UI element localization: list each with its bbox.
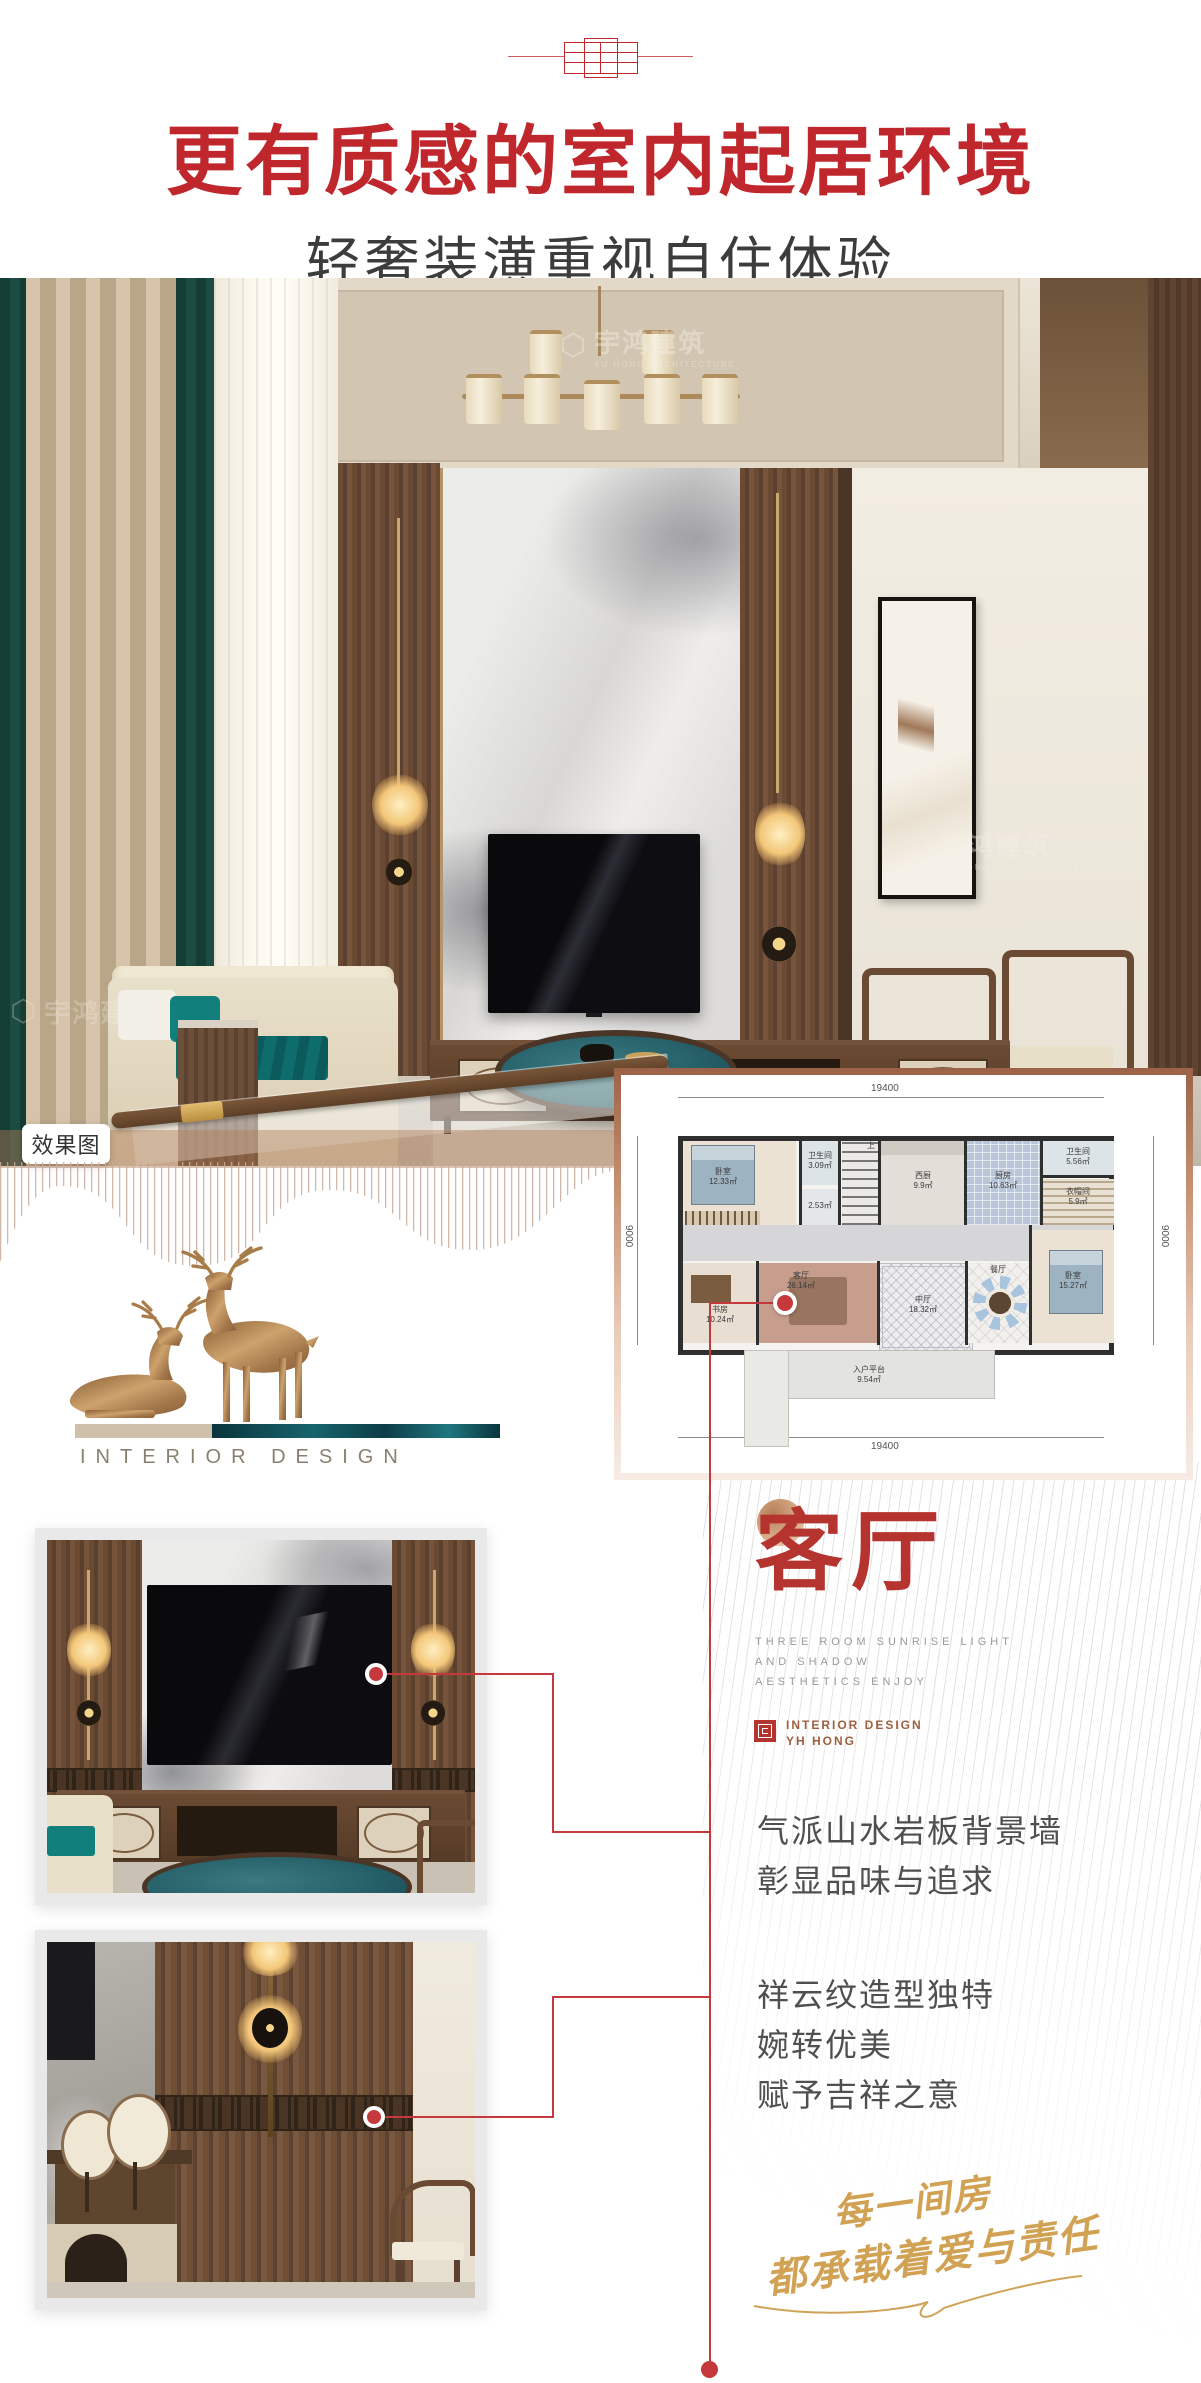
watermark: ⬡宇鸿建筑 bbox=[10, 993, 156, 1030]
room-label-dining: 餐厅 bbox=[969, 1265, 1027, 1275]
section-en-line: AND SHADOW bbox=[755, 1656, 871, 1668]
room-label-shower: 2.53㎡ bbox=[801, 1201, 839, 1211]
deer-shelf-left bbox=[75, 1424, 212, 1438]
connector-photo2 bbox=[382, 2116, 554, 2118]
page-title: 更有质感的室内起居环境 bbox=[0, 100, 1201, 210]
tv-screen bbox=[488, 834, 700, 1013]
seal-icon bbox=[754, 1720, 776, 1742]
detail-tv-screen bbox=[147, 1585, 392, 1765]
paragraph-1: 气派山水岩板背景墙彰显品味与追求 bbox=[757, 1806, 1063, 1906]
room-label-living: 客厅26.14㎡ bbox=[771, 1271, 831, 1291]
watermark: ⬡宇鸿建筑YU HONG ARCHITECTURE bbox=[560, 323, 736, 369]
dim-right: 9000 bbox=[1159, 1225, 1170, 1247]
detail-chair bbox=[382, 2180, 475, 2298]
room-label-bath-tr: 卫生间5.56㎡ bbox=[1049, 1147, 1107, 1167]
deer-shelf-teal bbox=[212, 1424, 500, 1438]
detail-photo-cloud-pattern-wall bbox=[35, 1930, 487, 2310]
dim-top: 19400 bbox=[871, 1083, 899, 1094]
room-label-cloak: 衣帽间5.9㎡ bbox=[1049, 1187, 1107, 1207]
photo1-marker-dot bbox=[365, 1663, 387, 1685]
photo2-marker-dot bbox=[363, 2106, 385, 2128]
poster-page: 更有质感的室内起居环境 轻奢装潢重视自住体验 bbox=[0, 0, 1201, 2383]
room-label-hall: 中厅18.32㎡ bbox=[893, 1295, 953, 1315]
floorplan-card: 19400 19400 9000 9000 bbox=[614, 1068, 1193, 1480]
room-label-entry: 入户平台9.54㎡ bbox=[837, 1365, 901, 1385]
wall-sconce-right bbox=[755, 798, 805, 870]
connector-photo1 bbox=[384, 1673, 554, 1675]
brand-line: YH HONG bbox=[786, 1734, 856, 1748]
section-en-line: THREE ROOM SUNRISE LIGHT bbox=[755, 1636, 1013, 1648]
connector-photo2 bbox=[552, 1997, 554, 2118]
header-lattice-icon bbox=[508, 40, 693, 74]
watermark: ⬡宇鸿建筑YU HONG ARCHITECTURE bbox=[905, 826, 1081, 872]
render-tag: 效果图 bbox=[22, 1124, 110, 1164]
deer-caption: INTERIOR DESIGN bbox=[80, 1446, 408, 1469]
paragraph-2: 祥云纹造型独特婉转优美赋予吉祥之意 bbox=[757, 1970, 995, 2120]
room-label-kitchen: 厨房10.63㎡ bbox=[973, 1171, 1033, 1191]
line-end-dot bbox=[701, 2361, 718, 2378]
stair-label: 上 bbox=[864, 1141, 878, 1151]
wall-sconce-left bbox=[372, 773, 428, 837]
detail-photo-tv-wall bbox=[35, 1528, 487, 1905]
plan-marker-dot bbox=[773, 1291, 797, 1315]
room-label-bedroom-r: 卧室15.27㎡ bbox=[1043, 1271, 1103, 1291]
room-label-study: 书房10.24㎡ bbox=[691, 1305, 749, 1325]
section-en-line: AESTHETICS ENJOY bbox=[755, 1676, 928, 1688]
dim-left: 9000 bbox=[623, 1225, 634, 1247]
connector-photo2 bbox=[552, 1996, 711, 1998]
connector-photo1 bbox=[552, 1673, 554, 1833]
curtain-dark-left bbox=[0, 278, 26, 1166]
room-label-pantry: 西厨9.9㎡ bbox=[893, 1171, 953, 1191]
section-title: 客厅 bbox=[755, 1506, 947, 1602]
brand-line: INTERIOR DESIGN bbox=[786, 1718, 923, 1732]
connector-photo1 bbox=[552, 1831, 711, 1833]
connector-main-vertical bbox=[709, 1303, 711, 2369]
living-room-photo: ⬡宇鸿建筑YU HONG ARCHITECTURE ⬡宇鸿建筑YU HONG A… bbox=[0, 278, 1201, 1166]
dim-bottom: 19400 bbox=[871, 1441, 899, 1452]
script-swash-decor bbox=[748, 2262, 1088, 2320]
floorplan-drawing: 19400 19400 9000 9000 bbox=[621, 1075, 1186, 1473]
wood-column-right bbox=[740, 468, 838, 1128]
room-label-bath-tl: 卫生间3.09㎡ bbox=[801, 1151, 839, 1171]
room-label-bedroom-tl: 卧室12.33㎡ bbox=[693, 1167, 753, 1187]
wood-wall-far-right bbox=[1148, 278, 1201, 1166]
golden-deer-ornament bbox=[55, 1244, 385, 1426]
